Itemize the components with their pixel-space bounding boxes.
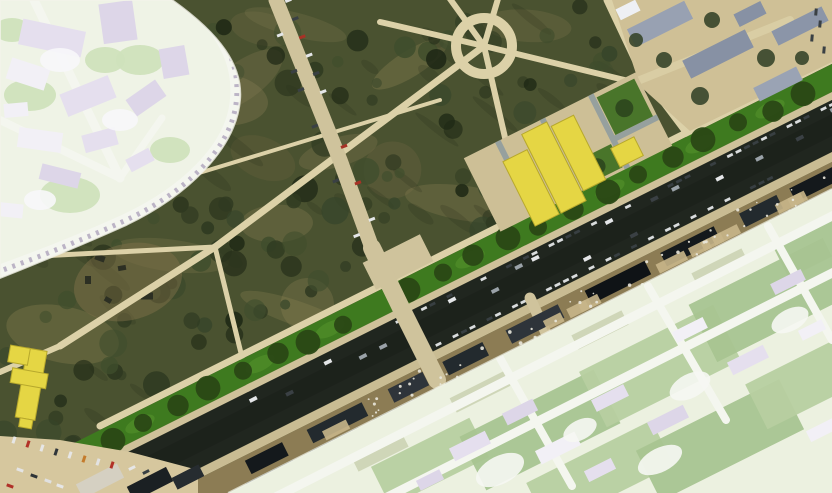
aerial-map-view[interactable]: [0, 0, 832, 493]
map-canvas[interactable]: [0, 0, 832, 493]
